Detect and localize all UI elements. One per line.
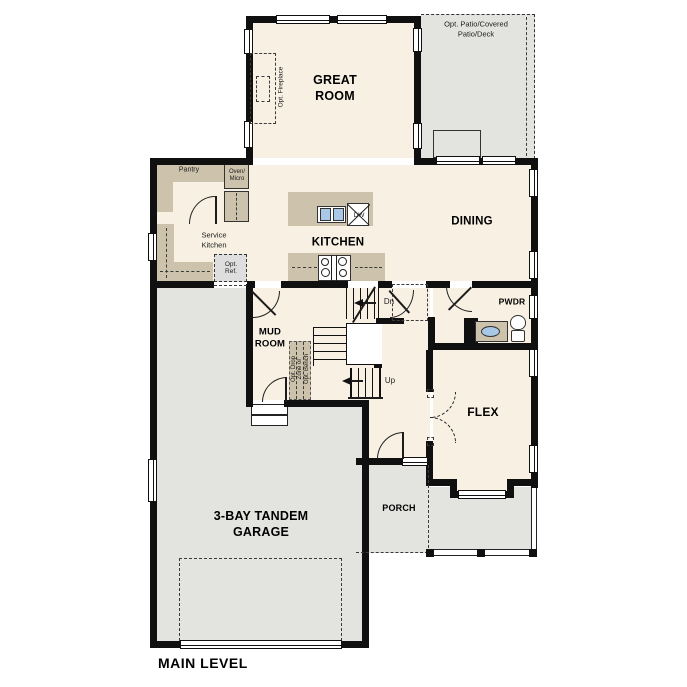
window — [529, 295, 538, 319]
railing-post — [426, 549, 434, 557]
opt-door-jamb — [427, 437, 434, 446]
flex-label: FLEX — [467, 405, 498, 421]
bay-window — [458, 490, 506, 499]
pwdr-sink — [481, 326, 500, 337]
wall — [246, 284, 253, 407]
window — [148, 233, 157, 261]
wall — [284, 400, 369, 407]
deck-railing-side — [531, 488, 537, 552]
dining-label: DINING — [451, 215, 492, 230]
window — [529, 349, 538, 377]
opt-drop-label-3: Opt. Bench — [304, 354, 310, 384]
stair-treads-turn — [313, 327, 346, 366]
wall — [150, 158, 157, 648]
patio-step-outline — [433, 130, 481, 158]
railing-post — [477, 549, 485, 557]
stair-landing-line — [348, 397, 383, 399]
garage-entry-step — [251, 404, 288, 415]
wall — [247, 281, 255, 288]
range-divider — [336, 255, 337, 281]
wall — [426, 350, 433, 392]
sink-basin — [333, 208, 344, 221]
toilet-bowl — [510, 315, 526, 330]
wall — [531, 158, 538, 488]
window — [413, 28, 422, 52]
counter-dashed-line — [292, 267, 317, 268]
wall — [378, 281, 392, 288]
counter-dashed-line — [355, 267, 382, 268]
plan-title: MAIN LEVEL — [158, 654, 248, 672]
opt-fireplace-label: Opt. Fireplace — [278, 67, 285, 108]
wall — [246, 16, 421, 23]
down-arrow-shaft — [361, 302, 376, 304]
porch-dashed-edge — [356, 552, 428, 553]
stairs-up-label: Up — [385, 376, 395, 386]
opt-door-jamb — [427, 389, 434, 398]
door-leaf — [402, 432, 404, 459]
window — [482, 156, 516, 165]
wall — [150, 158, 253, 165]
sink-basin — [320, 208, 331, 221]
wall — [362, 404, 369, 648]
window — [244, 29, 253, 54]
patio-inner-dashed-line — [526, 17, 527, 156]
pantry-label: Pantry — [179, 165, 199, 174]
range-divider — [331, 255, 332, 281]
window — [244, 121, 253, 148]
mud-room-label: MUD ROOM — [255, 327, 285, 352]
wall — [472, 281, 538, 288]
opt-fireplace-box — [256, 76, 270, 102]
up-arrow-head — [342, 377, 351, 385]
front-door-opening — [402, 457, 428, 466]
oven-micro-label: Oven/ Micro — [229, 169, 245, 183]
opt-ref-label: Opt. Ref. — [225, 261, 237, 275]
porch-label: PORCH — [382, 503, 416, 515]
railing-post — [529, 549, 537, 557]
pantry-shelf — [157, 182, 173, 212]
burner — [338, 257, 347, 266]
down-arrow-head — [354, 299, 363, 307]
dishwasher-label: DW — [354, 212, 365, 220]
wall — [281, 281, 348, 288]
cabinet-dashed-line — [236, 193, 237, 220]
stair-treads-up — [350, 368, 381, 398]
counter-dashed-line — [160, 271, 210, 272]
window — [148, 459, 157, 502]
service-kitchen-label: Service Kitchen — [201, 230, 226, 250]
burner — [339, 269, 347, 277]
opt-patio-label: Opt. Patio/Covered Patio/Deck — [444, 19, 508, 39]
porch-dashed-edge — [428, 465, 429, 553]
wall — [150, 281, 214, 288]
window — [529, 445, 538, 473]
burner — [321, 258, 329, 266]
wall — [428, 343, 538, 350]
window — [337, 15, 387, 24]
kitchen-label: KITCHEN — [312, 236, 365, 251]
garage-label: 3-BAY TANDEM GARAGE — [214, 508, 309, 541]
garage-entry-step — [251, 415, 288, 426]
window — [276, 15, 330, 24]
garage-door-opening — [180, 640, 342, 649]
window — [413, 123, 422, 149]
window — [529, 169, 538, 197]
window — [436, 156, 480, 165]
floor-plan: DW GREAT ROOM KITCHEN DINING PWDR MUD RO… — [0, 0, 687, 687]
stairs-down-label: Dn — [384, 297, 394, 307]
door-leaf — [215, 196, 217, 224]
toilet-tank — [511, 330, 525, 342]
door-leaf — [285, 377, 287, 402]
great-room-label: GREAT ROOM — [313, 72, 357, 105]
stair-rail — [346, 323, 382, 365]
opening-dashed — [214, 285, 247, 286]
burner — [321, 268, 330, 277]
wall — [428, 317, 435, 345]
up-arrow-shaft — [349, 380, 363, 382]
opt-drop-label-2: Zone or — [297, 359, 303, 380]
window — [529, 251, 538, 279]
pwdr-label: PWDR — [499, 296, 526, 307]
garage-door-outline — [179, 558, 342, 641]
